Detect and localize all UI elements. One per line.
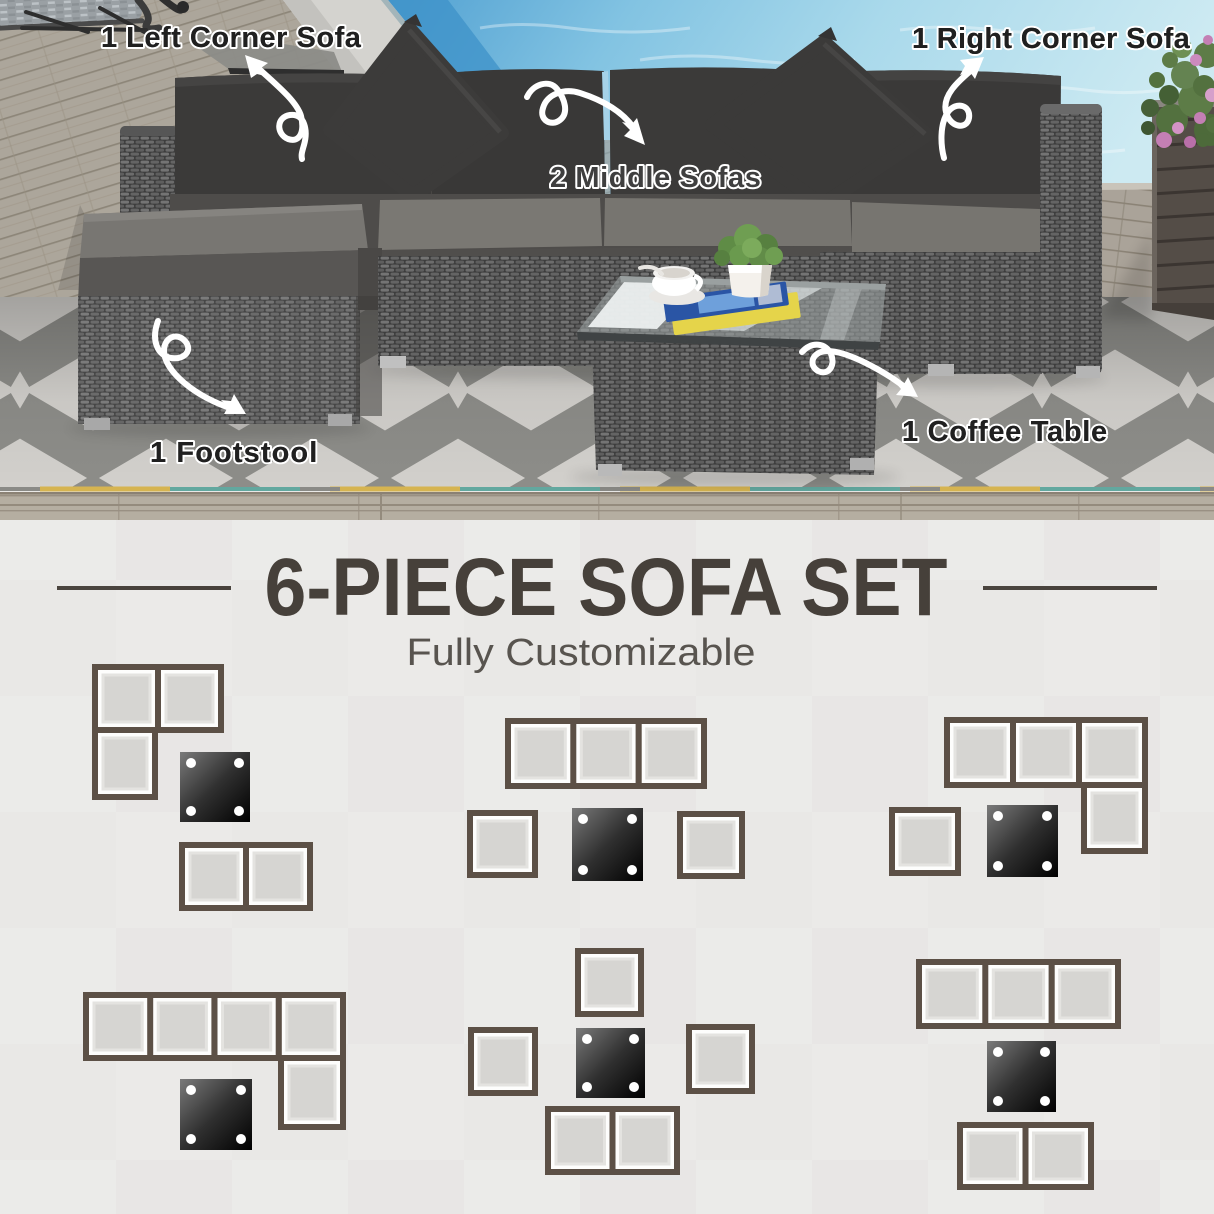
svg-text:1 Coffee Table: 1 Coffee Table [902, 416, 1108, 448]
svg-text:6-PIECE SOFA SET: 6-PIECE SOFA SET [265, 542, 948, 633]
svg-text:2 Middle Sofas: 2 Middle Sofas [550, 162, 761, 194]
svg-text:1 Footstool: 1 Footstool [150, 437, 318, 469]
svg-text:Fully Customizable: Fully Customizable [407, 632, 756, 674]
svg-text:1 Left Corner Sofa: 1 Left Corner Sofa [101, 22, 362, 54]
svg-text:1 Right Corner Sofa: 1 Right Corner Sofa [912, 23, 1191, 55]
